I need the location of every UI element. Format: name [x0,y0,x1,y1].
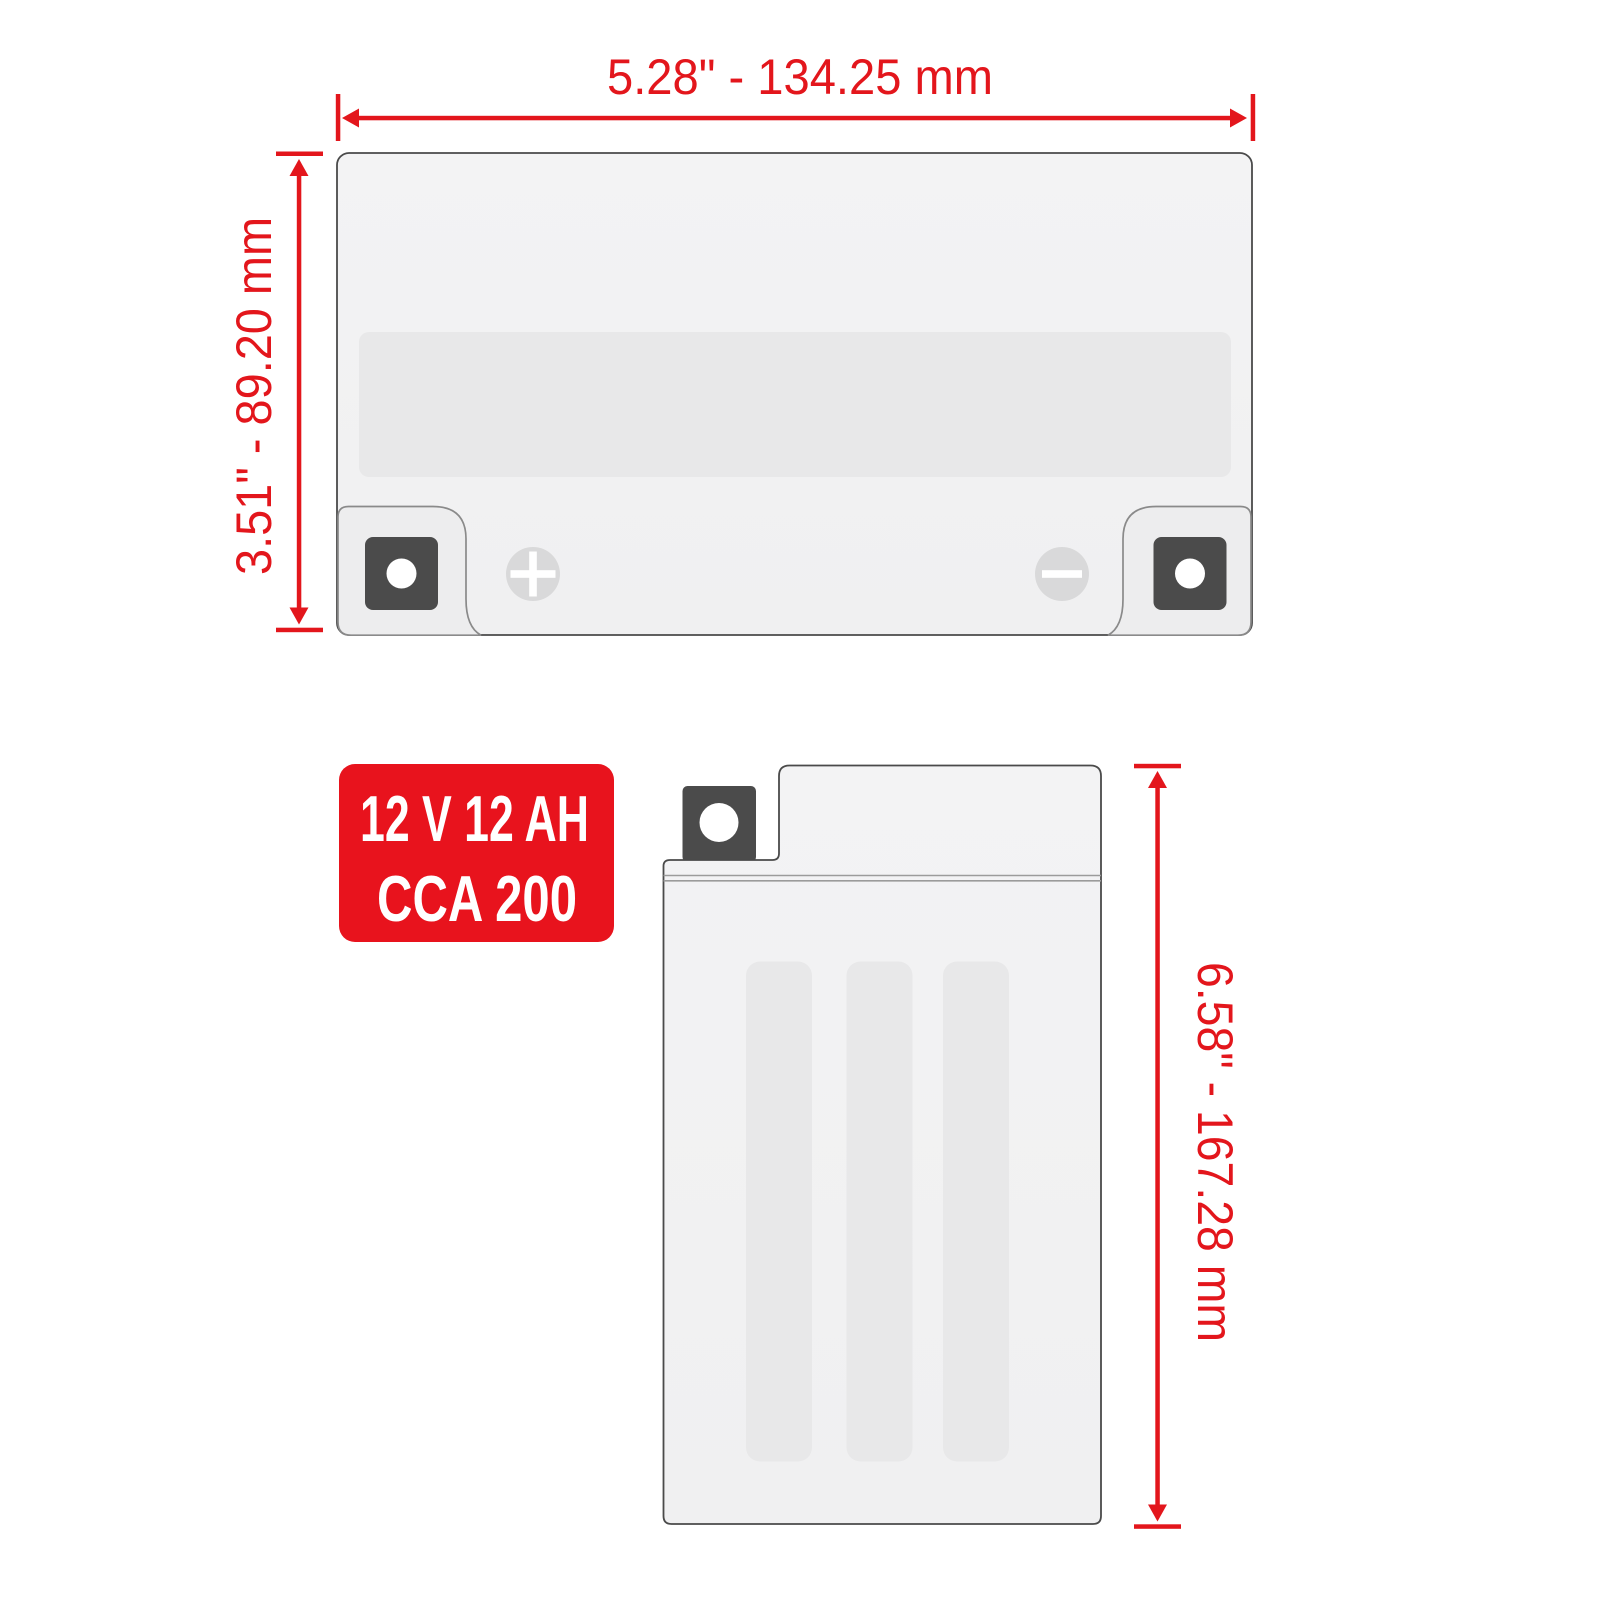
svg-text:CCA 200: CCA 200 [377,862,577,935]
svg-text:3.51" - 89.20 mm: 3.51" - 89.20 mm [226,217,282,575]
svg-text:5.28" - 134.25 mm: 5.28" - 134.25 mm [607,49,993,105]
svg-text:12 V 12 AH: 12 V 12 AH [360,782,589,855]
svg-text:6.58" - 167.28 mm: 6.58" - 167.28 mm [1187,962,1243,1342]
